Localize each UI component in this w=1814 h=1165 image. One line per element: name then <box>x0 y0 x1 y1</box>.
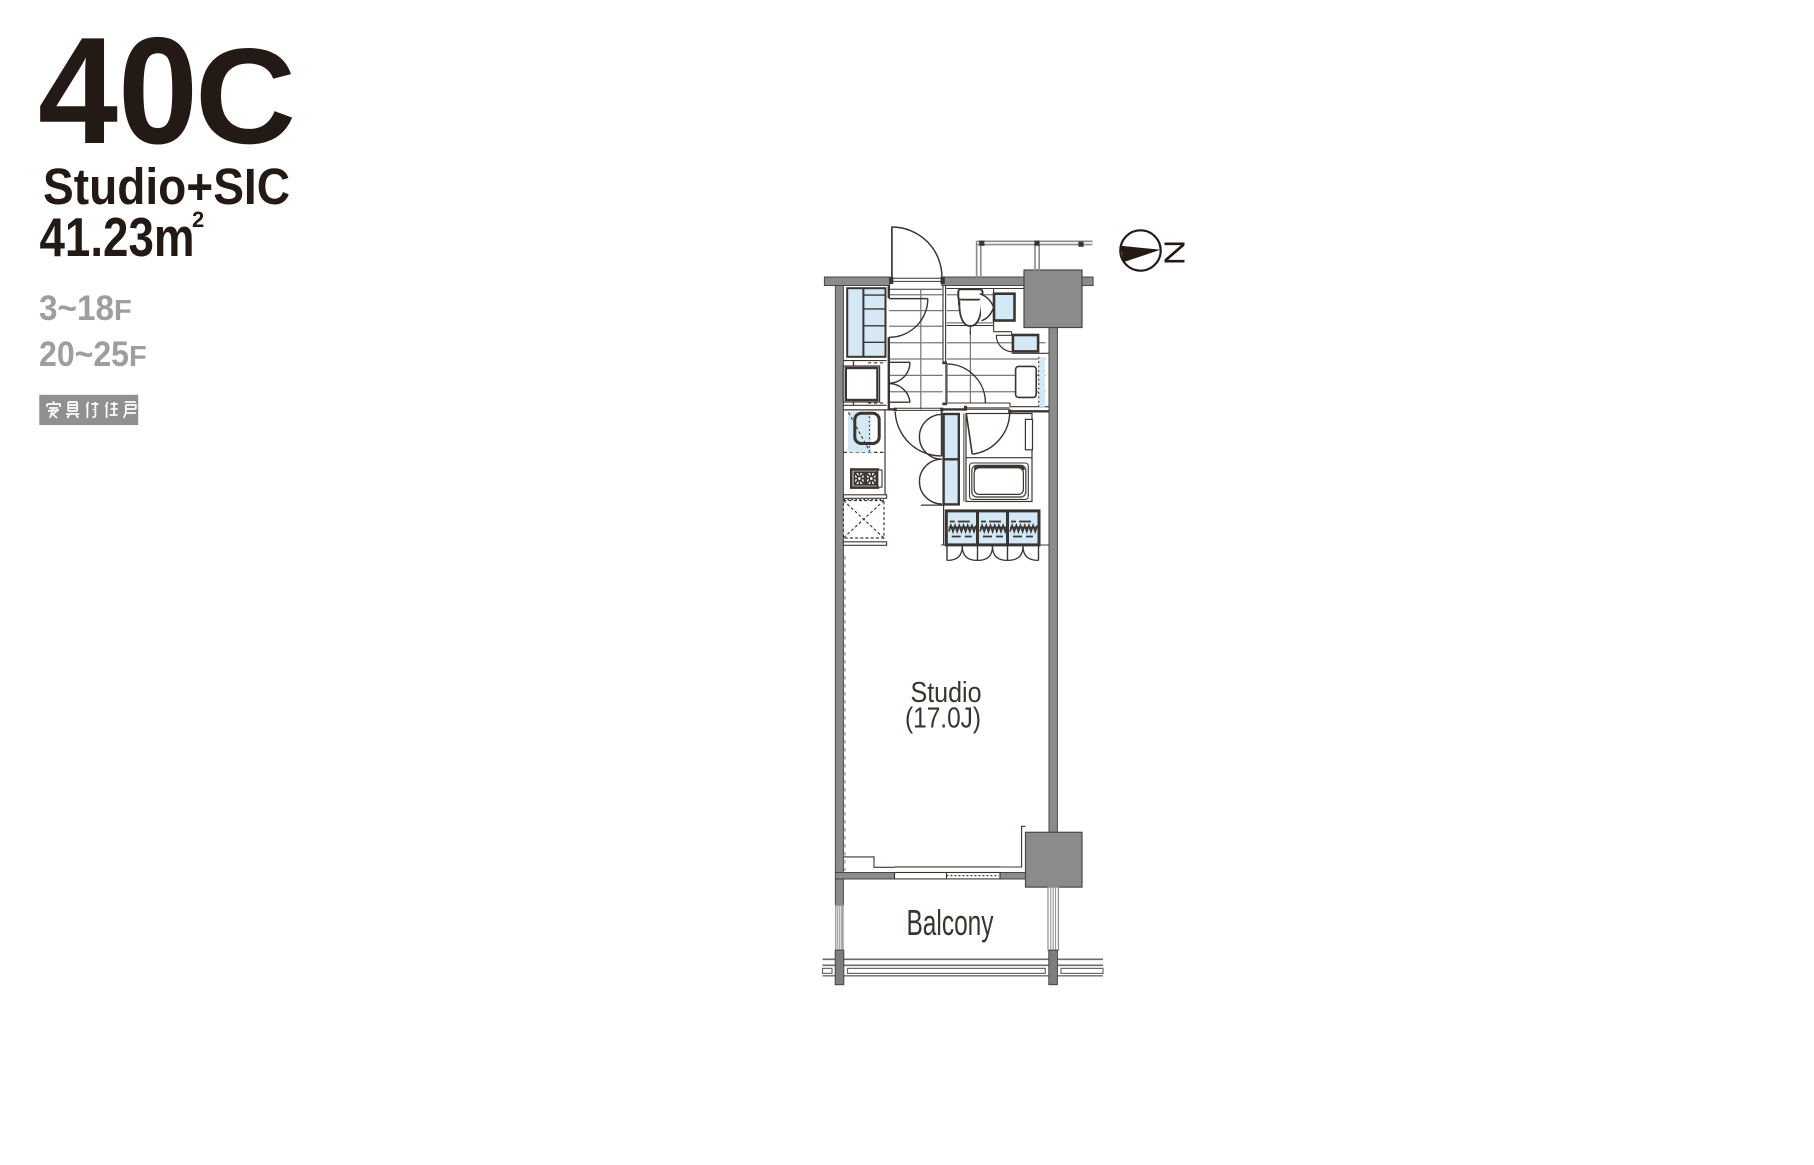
svg-text:3~18: 3~18 <box>39 289 114 328</box>
svg-text:Balcony: Balcony <box>907 902 994 943</box>
svg-text:F: F <box>114 295 132 327</box>
svg-text:C: C <box>195 20 296 172</box>
svg-text:41.23m: 41.23m <box>40 206 195 268</box>
svg-text:F: F <box>129 341 147 373</box>
svg-text:20~25: 20~25 <box>39 335 129 374</box>
svg-text:2: 2 <box>192 207 204 232</box>
svg-text:(17.0J): (17.0J) <box>905 703 981 735</box>
svg-text:40: 40 <box>38 6 198 176</box>
